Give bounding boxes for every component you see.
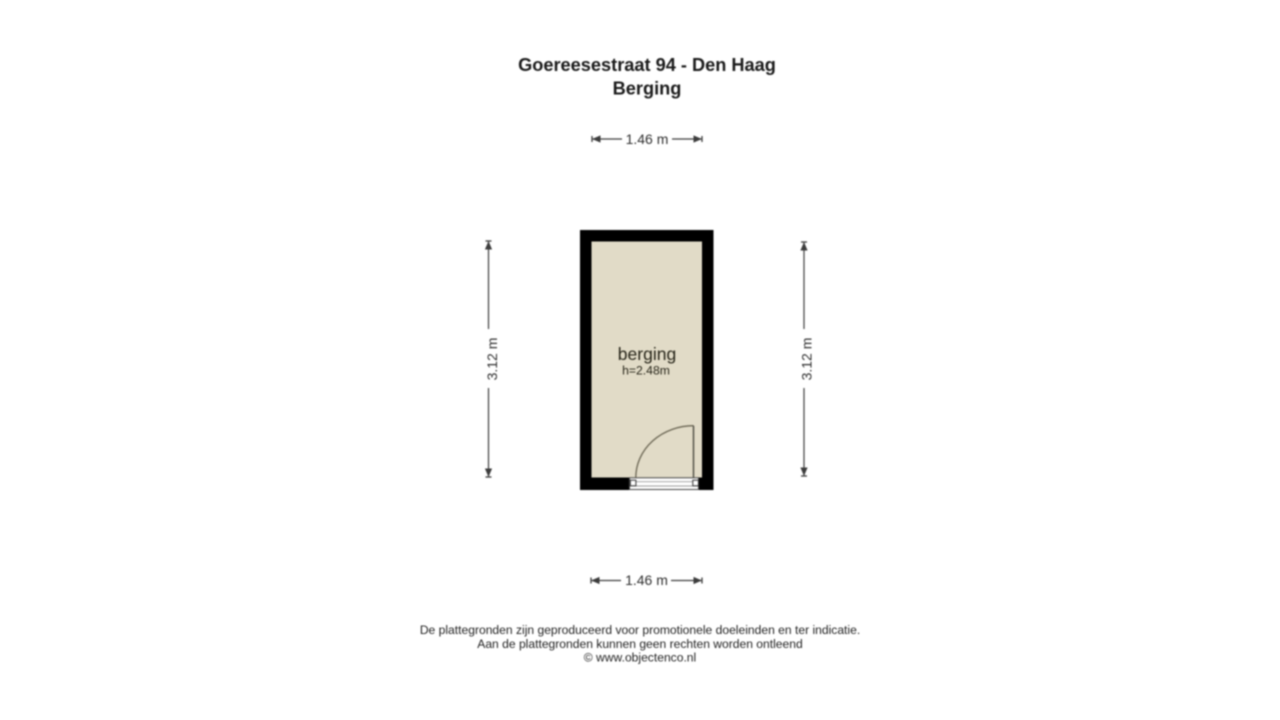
svg-text:3.12 m: 3.12 m bbox=[799, 338, 815, 381]
svg-text:Aan de plattegronden kunnen ge: Aan de plattegronden kunnen geen rechten… bbox=[477, 637, 802, 651]
svg-text:3.12 m: 3.12 m bbox=[484, 338, 500, 381]
svg-text:De plattegronden zijn geproduc: De plattegronden zijn geproduceerd voor … bbox=[420, 623, 860, 637]
svg-text:h=2.48m: h=2.48m bbox=[622, 364, 670, 378]
svg-text:1.46 m: 1.46 m bbox=[626, 131, 669, 147]
svg-text:berging: berging bbox=[618, 344, 676, 364]
svg-text:1.46 m: 1.46 m bbox=[625, 572, 668, 588]
svg-text:Goereesestraat 94 - Den Haag: Goereesestraat 94 - Den Haag bbox=[518, 55, 776, 75]
svg-text:Berging: Berging bbox=[613, 79, 682, 99]
svg-text:© www.objectenco.nl: © www.objectenco.nl bbox=[584, 651, 696, 665]
